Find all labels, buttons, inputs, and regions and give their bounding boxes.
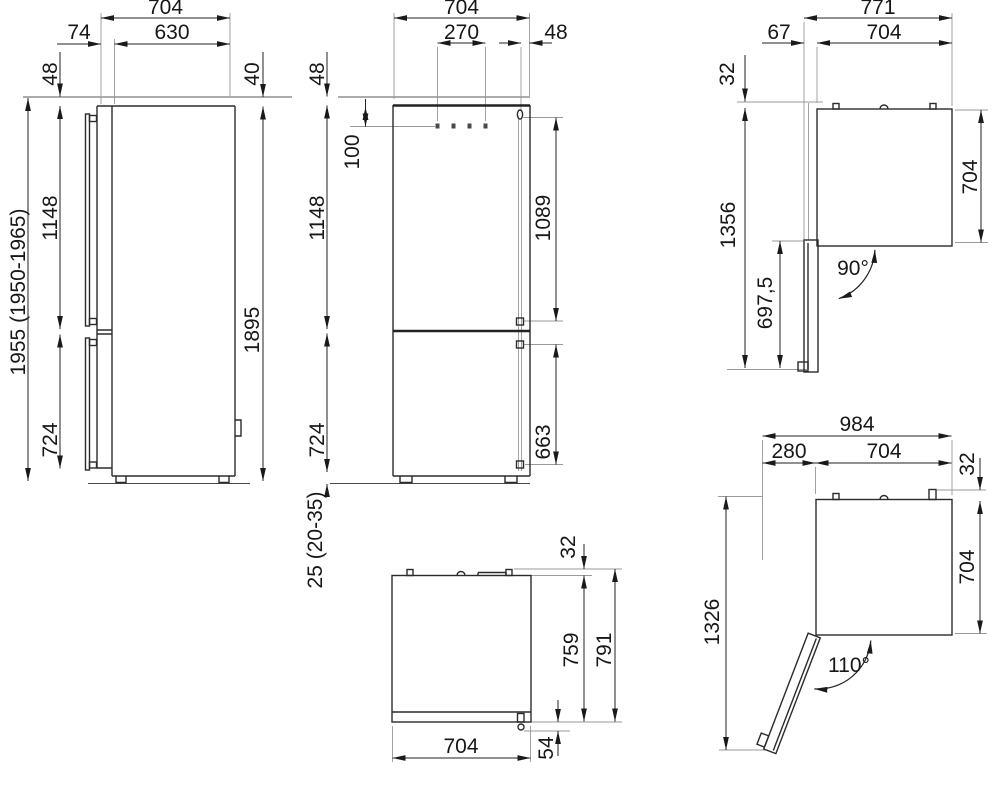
- dim-arrowhead: [260, 468, 266, 481]
- control-icon-4: [484, 124, 488, 129]
- dim-arrowhead: [393, 755, 406, 761]
- dim-arrowhead: [977, 477, 983, 490]
- front-view-feet: [400, 476, 517, 483]
- dim-arrowhead: [939, 15, 952, 21]
- dim-arrowhead: [763, 433, 776, 439]
- side-view: [86, 106, 242, 483]
- plan-closed-spacer-left: [407, 570, 413, 576]
- dim-plan90-depth: 704: [959, 159, 982, 194]
- door-handle-upper-bar: [86, 114, 90, 326]
- plan110-open-door-face-line: [773, 638, 816, 750]
- plan-view-closed: [392, 570, 531, 731]
- dim-arrowhead: [742, 108, 748, 121]
- plan-closed-hinge-pin: [518, 724, 524, 730]
- control-icon-3: [468, 124, 472, 129]
- dim-plan90-rear-clearance: 32: [716, 62, 739, 85]
- dim-front-panel-offset: 100: [341, 134, 364, 169]
- side-view-body-outline: [97, 106, 235, 476]
- plan110-door-handle-end: [757, 733, 769, 747]
- plan110-open-door: [756, 630, 820, 753]
- dim-plan110-depth: 704: [956, 549, 979, 584]
- dim-plan110-door-angle: 110°: [828, 654, 870, 677]
- dim-arrowhead: [939, 460, 952, 466]
- dim-arrowhead: [25, 98, 31, 111]
- dim-plan90-door-angle: 90°: [837, 257, 869, 280]
- dim-arrowhead: [977, 621, 983, 634]
- dim-arrowhead: [791, 40, 804, 46]
- dim-side-door-depth: 74: [67, 21, 91, 44]
- dim-front-lower-door-height: 663: [532, 424, 555, 459]
- dim-front-hinge-offset: 48: [544, 21, 567, 44]
- dim-arrowhead: [814, 686, 827, 693]
- extension-lines: [101, 13, 988, 762]
- dim-arrowhead: [723, 497, 729, 510]
- dim-arrowhead: [742, 355, 748, 368]
- dim-arrowhead: [394, 15, 407, 21]
- dim-arrowhead: [260, 107, 266, 120]
- dim-arrowhead: [518, 755, 531, 761]
- dim-arrowhead: [324, 459, 330, 472]
- dimension-lines: [28, 18, 981, 758]
- dim-arrowhead: [101, 15, 114, 21]
- dimension-labels: 704 630 74 48 1148 724 1955 (1950-1965) …: [7, 0, 982, 760]
- dim-plan110-width: 704: [866, 440, 901, 463]
- dim-arrowhead: [817, 40, 830, 46]
- dim-arrowhead: [871, 250, 877, 263]
- dim-arrowhead: [939, 433, 952, 439]
- dim-plan90-width: 704: [866, 21, 901, 44]
- dim-arrowhead: [324, 334, 330, 347]
- dim-planclosed-depth-total: 791: [593, 632, 616, 667]
- front-view-body-outline: [393, 105, 530, 476]
- plan-view-110: [756, 490, 952, 754]
- dim-arrowhead: [553, 118, 559, 131]
- dim-arrowhead: [939, 40, 952, 46]
- dim-plan90-door-span: 697,5: [754, 277, 777, 330]
- dim-plan110-depth-open: 1326: [701, 599, 724, 646]
- dim-front-width: 704: [444, 0, 479, 19]
- dim-arrowhead: [25, 468, 31, 481]
- technical-dimension-drawing: 704 630 74 48 1148 724 1955 (1950-1965) …: [0, 0, 1000, 800]
- dim-arrowhead: [57, 335, 63, 348]
- dim-arrowhead: [553, 308, 559, 321]
- dim-side-overall-height: 1895: [241, 307, 264, 354]
- dim-arrowhead: [324, 316, 330, 329]
- plan90-wall-spacer-right: [930, 104, 936, 110]
- dim-arrowhead: [508, 40, 521, 46]
- dim-arrowhead: [777, 355, 783, 368]
- plan110-spacer-right: [929, 490, 936, 500]
- dim-arrowhead: [57, 316, 63, 329]
- dim-plan90-depth-from-wall: 1356: [717, 202, 740, 249]
- dim-arrowhead: [816, 460, 829, 466]
- top-hinge-pin: [517, 110, 522, 119]
- dim-arrowhead: [742, 89, 748, 102]
- front-view: [393, 105, 530, 483]
- dim-front-top-clearance: 48: [306, 62, 329, 85]
- dim-plan110-width-total: 984: [839, 413, 874, 436]
- dim-side-lower-height: 724: [39, 422, 62, 457]
- plan-closed-cabinet: [392, 576, 531, 723]
- plan90-wall-spacer-left: [833, 104, 839, 110]
- dim-plan90-depth-total: 771: [860, 0, 895, 19]
- plan-view-90: [798, 104, 952, 373]
- rear-spacer-bracket: [235, 420, 241, 436]
- bottom-hinge: [517, 461, 524, 468]
- dim-arrowhead: [581, 576, 587, 589]
- door-handle-upper-standoff-top: [90, 116, 97, 122]
- dim-arrowhead: [217, 15, 230, 21]
- dim-arrowhead: [978, 110, 984, 123]
- dim-arrowhead: [978, 230, 984, 243]
- dim-arrowhead: [553, 345, 559, 358]
- dim-arrowhead: [804, 15, 817, 21]
- plan-closed-spacer-right: [506, 570, 512, 576]
- dim-arrowhead: [581, 709, 587, 722]
- dim-side-cabinet-depth: 630: [154, 21, 189, 44]
- middle-hinge-lower: [517, 341, 524, 348]
- dim-planclosed-rear-clearance: 32: [557, 535, 580, 558]
- plan110-spacer-left: [833, 494, 839, 500]
- control-icon-2: [452, 124, 456, 129]
- control-panel-icons: [436, 124, 488, 129]
- dim-arrowhead: [777, 241, 783, 254]
- dim-arrowhead: [324, 106, 330, 119]
- dim-arrowhead: [612, 709, 618, 722]
- middle-hinge-upper: [517, 318, 524, 325]
- dim-front-lower-height: 724: [306, 422, 329, 457]
- dim-side-upper-height: 1148: [39, 195, 62, 240]
- dim-arrowhead: [115, 41, 128, 47]
- dim-arrowhead: [581, 556, 587, 569]
- dim-side-top-clearance: 48: [39, 62, 62, 85]
- dim-planclosed-hinge-depth: 54: [535, 736, 558, 760]
- dim-front-base-gap: 25 (20-35): [304, 492, 327, 589]
- plan90-cabinet: [817, 109, 952, 246]
- door-handle-lower-standoff-bottom: [90, 462, 97, 468]
- dim-plan110-rear-clearance: 32: [956, 452, 979, 475]
- dim-side-depth-total: 704: [148, 0, 183, 19]
- dim-plan110-door-projection: 280: [771, 440, 806, 463]
- dim-side-niche-height: 1955 (1950-1965): [7, 209, 30, 376]
- dimension-arrowheads: [25, 15, 984, 761]
- dim-arrowhead: [838, 292, 852, 302]
- refrigerator-dimension-diagram: 704 630 74 48 1148 724 1955 (1950-1965) …: [0, 0, 1000, 800]
- dim-arrowhead: [977, 501, 983, 514]
- dim-arrowhead: [723, 737, 729, 750]
- door-handle-upper-standoff-bottom: [90, 319, 97, 325]
- dim-arrowhead: [217, 41, 230, 47]
- dim-front-upper-height: 1148: [306, 195, 329, 240]
- dim-plan90-door-thickness: 67: [767, 21, 790, 44]
- plan110-cabinet: [816, 500, 952, 636]
- dim-arrowhead: [555, 709, 561, 722]
- front-view-thick-edges: [393, 106, 530, 332]
- dim-front-handle-span: 270: [444, 21, 479, 44]
- dim-planclosed-width: 704: [443, 735, 478, 758]
- dim-front-upper-door-height: 1089: [532, 195, 555, 242]
- side-view-feet: [116, 476, 229, 483]
- control-icon-1: [436, 124, 440, 129]
- dim-side-hinge-clearance: 40: [241, 62, 264, 85]
- door-handle-lower-bar: [86, 338, 90, 470]
- plan-closed-hinge-body: [518, 714, 525, 723]
- dim-arrowhead: [517, 15, 530, 21]
- door-handle-lower-standoff-top: [90, 340, 97, 346]
- dim-arrowhead: [612, 569, 618, 582]
- plan90-open-door: [804, 240, 818, 372]
- dim-arrowhead: [57, 106, 63, 119]
- dim-planclosed-body-depth: 759: [560, 632, 583, 667]
- dim-arrowhead: [530, 40, 543, 46]
